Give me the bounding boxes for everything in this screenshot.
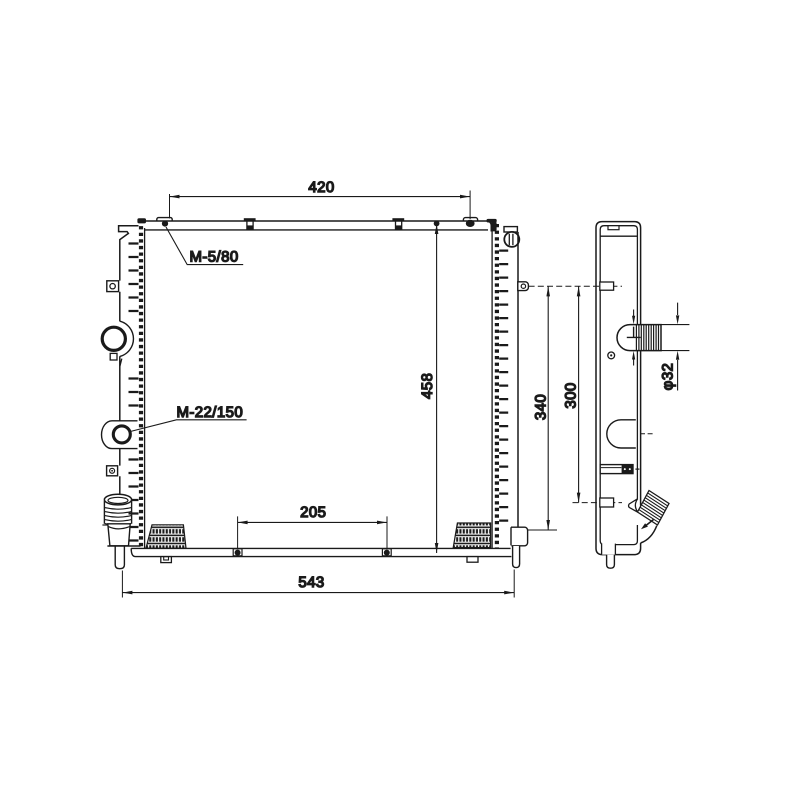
- svg-text:420: 420: [308, 179, 334, 196]
- svg-text:340: 340: [533, 394, 550, 420]
- svg-text:205: 205: [300, 504, 326, 521]
- svg-text:543: 543: [298, 574, 324, 591]
- svg-text:M-5/80: M-5/80: [190, 249, 239, 266]
- svg-text:M-22/150: M-22/150: [177, 404, 244, 421]
- svg-text:φ32: φ32: [659, 363, 676, 391]
- svg-text:300: 300: [563, 382, 580, 408]
- svg-text:458: 458: [419, 373, 436, 399]
